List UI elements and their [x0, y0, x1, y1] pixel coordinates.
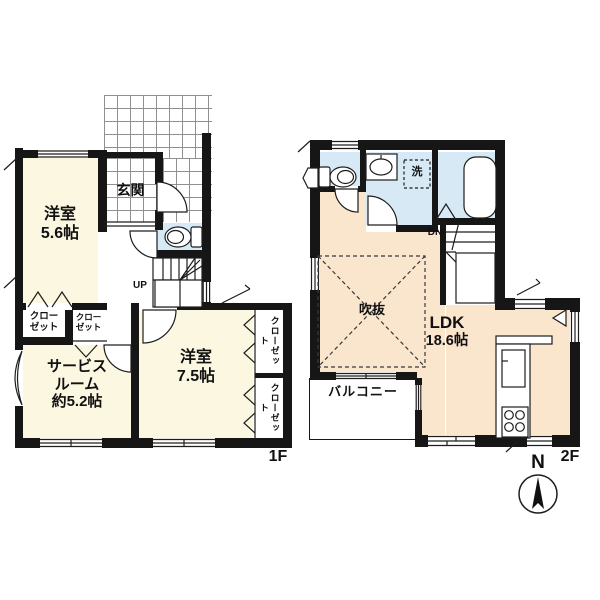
- doors-2f: [335, 186, 456, 232]
- closet-label: クローゼット: [256, 312, 282, 370]
- room-area: 7.5帖: [139, 368, 253, 387]
- void-label: 吹抜: [341, 302, 403, 317]
- stairs-dn-label: DN: [423, 227, 447, 239]
- stairs-up-label: UP: [128, 280, 152, 292]
- room-name: ルーム: [23, 376, 131, 394]
- room-name: LDK: [402, 313, 492, 333]
- room-name: サービス: [23, 358, 131, 376]
- closet-label: クロー ゼット: [70, 312, 107, 332]
- service-room-label: サービス ルーム 約5.2帖: [23, 358, 131, 411]
- bathtub-icon: [464, 157, 496, 218]
- closet-label: クローゼット: [256, 380, 282, 436]
- floor2-label: 2F: [551, 448, 589, 467]
- toilet-icon-2f: [319, 167, 356, 187]
- entrance-door: [157, 182, 187, 212]
- toilet-1f-door: [130, 231, 157, 258]
- floorplan-canvas: 洋室 5.6帖 玄関 サービス ルーム 約5.2帖 洋室 7.5帖 クロー ゼッ…: [0, 0, 600, 600]
- balcony-label: バルコニー: [316, 384, 410, 399]
- fridge-icon: [502, 350, 525, 387]
- compass-icon: [519, 475, 557, 513]
- toilet-2f-door: [335, 189, 358, 212]
- toilet-icon-1f: [165, 227, 202, 247]
- window-swing-mark: [553, 310, 566, 326]
- washroom-door: [368, 196, 397, 225]
- room-area: 5.6帖: [20, 225, 100, 244]
- room-area: 18.6帖: [402, 333, 492, 350]
- sink-icon: [366, 154, 397, 180]
- room-7-5-door: [143, 310, 176, 343]
- laundry-label: 洗: [404, 166, 430, 179]
- plan-linework: [0, 0, 600, 600]
- kitchen-counter: [496, 336, 552, 438]
- entrance-label: 玄関: [104, 182, 157, 199]
- room-area: 約5.2帖: [23, 393, 131, 411]
- room-7-5-label: 洋室 7.5帖: [139, 349, 253, 387]
- compass-north-label: N: [524, 452, 552, 474]
- stairs-2f: [446, 222, 495, 303]
- toilet-2f-window: [303, 168, 318, 188]
- entrance-step: [104, 222, 157, 226]
- room-name: 洋室: [139, 349, 253, 368]
- room-5-6-label: 洋室 5.6帖: [20, 206, 100, 244]
- ldk-label: LDK 18.6帖: [402, 313, 492, 350]
- bath-folding-door: [436, 204, 456, 220]
- room-name: 洋室: [20, 206, 100, 225]
- stairs-1f: [153, 258, 202, 307]
- floor1-label: 1F: [259, 448, 297, 467]
- closet-label: クロー ゼット: [22, 311, 66, 333]
